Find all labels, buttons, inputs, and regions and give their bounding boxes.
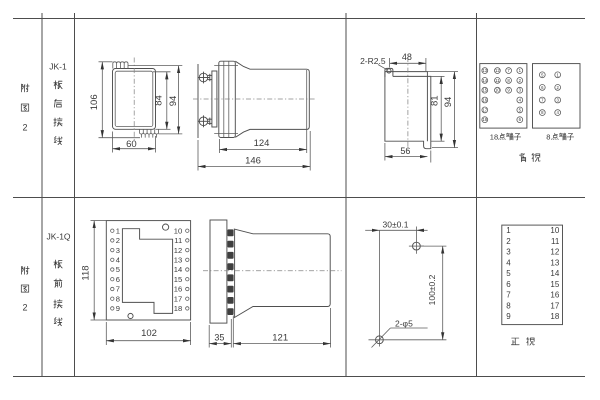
- svg-text:2-φ5: 2-φ5: [395, 318, 413, 328]
- svg-text:8: 8: [546, 133, 550, 142]
- svg-text:18: 18: [482, 117, 487, 122]
- svg-text:48: 48: [402, 52, 412, 62]
- svg-text:8: 8: [116, 294, 120, 303]
- svg-text:15: 15: [482, 88, 487, 93]
- svg-text:5: 5: [116, 265, 120, 274]
- svg-text:9: 9: [116, 304, 120, 313]
- svg-text:13: 13: [174, 256, 182, 265]
- svg-text:106: 106: [89, 94, 100, 110]
- svg-text:JK-1: JK-1: [49, 62, 67, 72]
- svg-text:11: 11: [174, 236, 182, 245]
- svg-text:7: 7: [507, 68, 510, 73]
- svg-text:14: 14: [174, 265, 182, 274]
- svg-text:2: 2: [22, 123, 27, 133]
- svg-text:30±0.1: 30±0.1: [383, 219, 409, 229]
- svg-text:18: 18: [550, 312, 559, 321]
- svg-text:10: 10: [550, 226, 559, 235]
- svg-text:17: 17: [482, 107, 487, 112]
- svg-text:4: 4: [506, 258, 511, 267]
- svg-text:4: 4: [519, 98, 522, 103]
- svg-text:3: 3: [116, 246, 120, 255]
- svg-text:56: 56: [400, 146, 410, 156]
- svg-text:121: 121: [272, 333, 288, 344]
- svg-text:146: 146: [245, 155, 261, 166]
- svg-text:15: 15: [174, 275, 182, 284]
- svg-text:1: 1: [519, 68, 522, 73]
- svg-text:9: 9: [507, 88, 510, 93]
- svg-text:118: 118: [81, 265, 92, 280]
- svg-text:6: 6: [116, 275, 120, 284]
- svg-text:100±0.2: 100±0.2: [427, 274, 437, 305]
- svg-text:16: 16: [482, 98, 487, 103]
- svg-text:60: 60: [126, 139, 137, 150]
- svg-text:18: 18: [490, 133, 498, 142]
- svg-text:3: 3: [506, 248, 511, 257]
- svg-text:10: 10: [495, 88, 500, 93]
- svg-text:15: 15: [550, 280, 559, 289]
- svg-text:14: 14: [482, 78, 487, 83]
- svg-text:8: 8: [507, 78, 510, 83]
- svg-text:5: 5: [506, 269, 511, 278]
- svg-text:102: 102: [141, 328, 157, 339]
- svg-text:12: 12: [174, 246, 182, 255]
- svg-text:7: 7: [506, 291, 511, 300]
- svg-text:2: 2: [557, 85, 560, 90]
- svg-text:9: 9: [506, 312, 511, 321]
- svg-text:11: 11: [495, 78, 500, 83]
- svg-text:4: 4: [116, 256, 120, 265]
- svg-text:94: 94: [168, 96, 179, 107]
- svg-text:6: 6: [519, 117, 522, 122]
- svg-text:2: 2: [22, 303, 27, 313]
- svg-text:124: 124: [254, 138, 270, 149]
- svg-text:1: 1: [506, 226, 511, 235]
- svg-text:11: 11: [551, 237, 560, 246]
- svg-text:2: 2: [506, 237, 511, 246]
- svg-text:2-R2.5: 2-R2.5: [360, 56, 386, 66]
- svg-text:6: 6: [541, 85, 544, 90]
- svg-text:2: 2: [519, 78, 522, 83]
- svg-text:7: 7: [541, 98, 544, 103]
- svg-text:4: 4: [557, 110, 560, 115]
- svg-text:5: 5: [519, 107, 522, 112]
- svg-text:17: 17: [550, 301, 559, 310]
- svg-text:17: 17: [174, 294, 182, 303]
- svg-text:81: 81: [430, 95, 441, 106]
- svg-text:3: 3: [557, 98, 560, 103]
- svg-text:35: 35: [214, 333, 224, 343]
- svg-text:18: 18: [174, 304, 182, 313]
- svg-text:8: 8: [541, 110, 544, 115]
- svg-text:14: 14: [550, 269, 559, 278]
- svg-text:6: 6: [506, 280, 511, 289]
- svg-text:8: 8: [506, 301, 511, 310]
- svg-text:JK-1Q: JK-1Q: [46, 232, 70, 242]
- svg-text:84: 84: [154, 95, 165, 106]
- svg-text:3: 3: [519, 88, 522, 93]
- svg-text:10: 10: [174, 226, 182, 235]
- svg-text:13: 13: [482, 68, 487, 73]
- svg-text:1: 1: [116, 226, 120, 235]
- svg-text:94: 94: [443, 97, 454, 108]
- svg-text:5: 5: [541, 72, 544, 77]
- svg-text:13: 13: [550, 258, 559, 267]
- svg-text:7: 7: [116, 285, 120, 294]
- svg-text:12: 12: [550, 248, 559, 257]
- svg-text:1: 1: [557, 72, 560, 77]
- svg-text:12: 12: [495, 68, 500, 73]
- svg-text:16: 16: [174, 285, 182, 294]
- svg-text:2: 2: [116, 236, 120, 245]
- svg-text:16: 16: [550, 291, 559, 300]
